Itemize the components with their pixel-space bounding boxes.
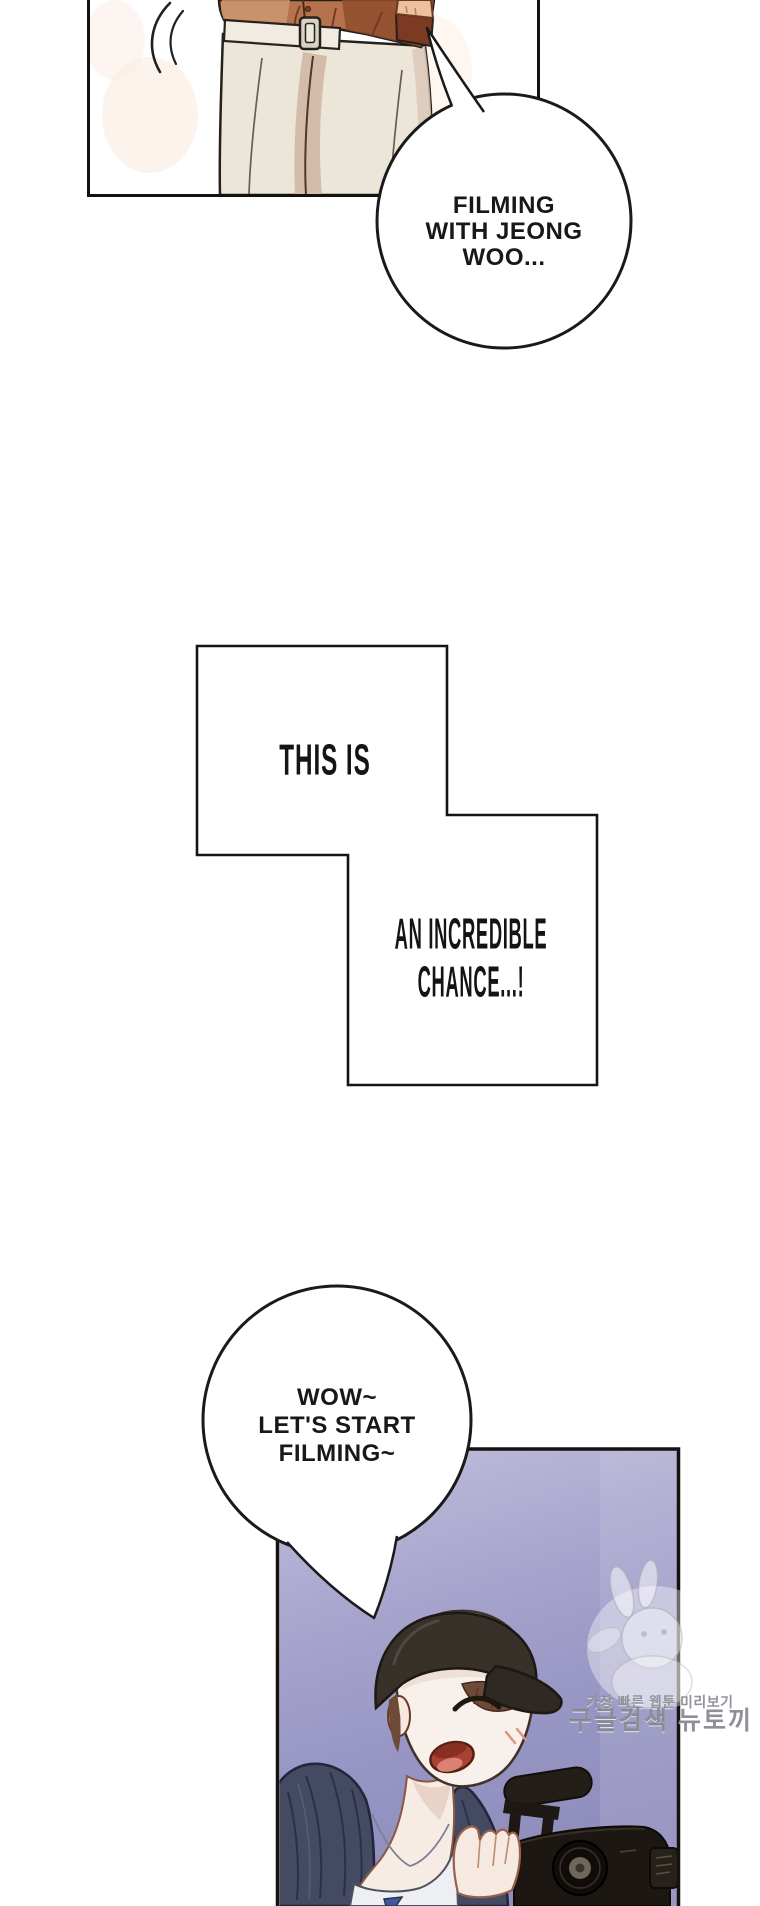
caption-box-2-line-2: CHANCE...! bbox=[369, 956, 573, 1008]
bubble-1-line-3: WOO... bbox=[374, 245, 634, 271]
webtoon-page: FILMING WITH JEONG WOO... THIS IS AN INC… bbox=[0, 0, 760, 1906]
caption-boxes-outline bbox=[197, 646, 597, 1085]
caption-box-2-line-1: AN INCREDIBLE bbox=[369, 908, 573, 960]
bubble-2-line-3: FILMING~ bbox=[207, 1440, 467, 1468]
bubble-1-line-1: FILMING bbox=[374, 193, 634, 219]
bubble-2-text: WOW~ LET'S START FILMING~ bbox=[207, 1384, 467, 1468]
bubble-2-line-2: LET'S START bbox=[207, 1412, 467, 1440]
watermark-text-line-2: 구글검색 뉴토끼 bbox=[561, 1708, 760, 1735]
raised-hand bbox=[454, 1827, 520, 1898]
bubble-1-line-2: WITH JEONG bbox=[374, 219, 634, 245]
character-hand-on-hip bbox=[396, 0, 433, 46]
caption-box-1-text: THIS IS bbox=[190, 734, 460, 786]
bubble-2-line-1: WOW~ bbox=[207, 1384, 467, 1412]
bubble-1-text: FILMING WITH JEONG WOO... bbox=[374, 193, 634, 271]
